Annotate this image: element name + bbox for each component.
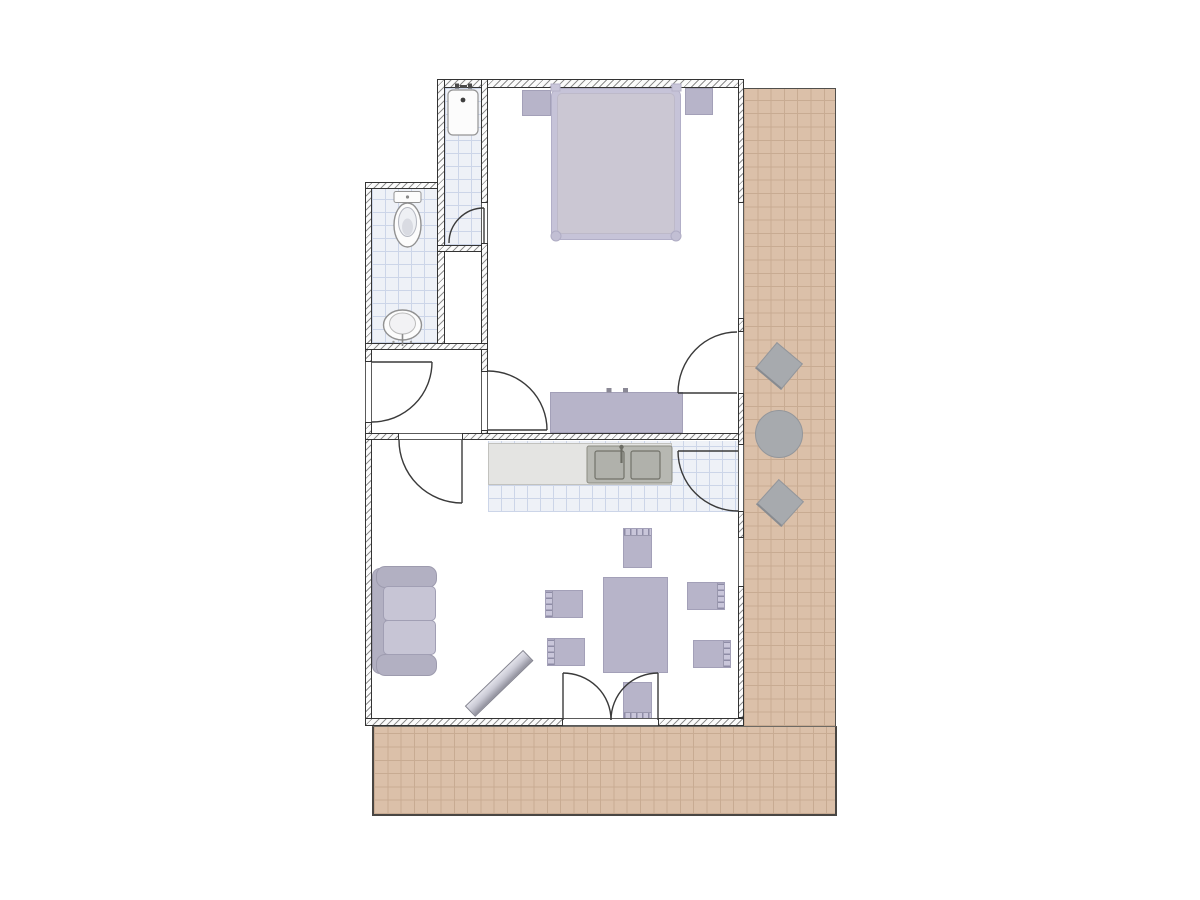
bed-duvet: [557, 93, 675, 234]
french-door-threshold: [563, 718, 658, 726]
dresser: [550, 392, 683, 433]
wall-right-4: [738, 511, 744, 538]
living-room-window: [738, 538, 744, 586]
entrance-door-threshold: [365, 362, 372, 422]
sofa-cushion: [383, 586, 436, 621]
wall-right-3: [738, 393, 744, 445]
wall-middle-left: [365, 433, 399, 440]
floor-plan: [0, 0, 1200, 900]
wall-right-2: [738, 318, 744, 332]
kitchen-terrace-door-threshold: [738, 445, 744, 511]
wall-right-5: [738, 586, 744, 718]
hallway-floor: [372, 350, 481, 433]
nightstand-right: [685, 88, 713, 115]
wall-left-upper: [365, 182, 372, 362]
terrace-round-table: [755, 410, 803, 458]
wall-bottom-right: [658, 718, 744, 726]
terrace-side: [744, 88, 836, 726]
terrace-bottom: [372, 726, 837, 816]
bedroom-window: [738, 203, 744, 318]
wall-bedroom-left-1: [481, 79, 488, 203]
kitchen-counter: [488, 443, 672, 485]
dining-chair-right-1: [687, 582, 725, 610]
bathroom-floor: [372, 189, 437, 343]
dining-chair-left-1: [545, 590, 583, 618]
dining-chair-left-2: [547, 638, 585, 666]
wall-middle-right: [462, 433, 744, 440]
sofa: [372, 566, 437, 676]
wall-bathroom-top: [365, 182, 445, 189]
chair-backrest: [717, 583, 724, 609]
chair-backrest: [624, 529, 651, 536]
wall-bath-shower-divider: [437, 79, 445, 350]
dining-chair-top: [623, 528, 652, 568]
hall-living-door-threshold: [399, 433, 462, 440]
closet-floor: [445, 252, 481, 343]
dining-chair-right-2: [693, 640, 731, 668]
shower-door-threshold: [481, 203, 488, 243]
wall-bottom-left: [365, 718, 563, 726]
bedroom-terrace-door-threshold: [738, 332, 744, 393]
chair-backrest: [548, 639, 555, 665]
hall-bedroom-door-threshold: [481, 372, 488, 430]
wall-left-lower: [365, 422, 372, 722]
sofa-cushion: [383, 620, 436, 655]
chair-backrest: [546, 591, 553, 617]
chair-backrest: [723, 641, 730, 667]
nightstand-left: [522, 90, 551, 116]
dining-table: [603, 577, 668, 673]
shower-room-floor: [445, 88, 481, 245]
wall-bathroom-bottom: [365, 343, 488, 350]
dining-chair-bottom: [623, 682, 652, 720]
sofa-armrest-bottom: [376, 654, 437, 676]
wall-right-1: [738, 79, 744, 203]
sofa-armrest-top: [376, 566, 437, 588]
wall-bedroom-left-2: [481, 243, 488, 372]
